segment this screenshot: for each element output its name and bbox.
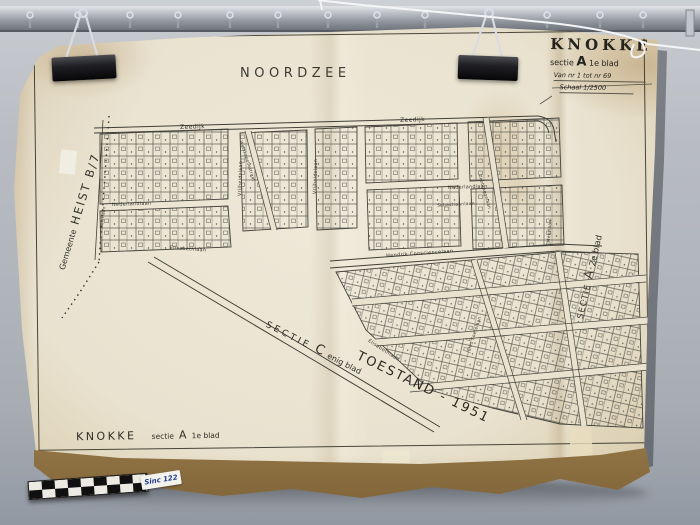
street-label: Nederlandlaan <box>112 201 151 208</box>
street-label: Heistlaan <box>99 206 107 229</box>
street-label: Elisabethlaan <box>170 245 207 253</box>
street-label: Meerlaan <box>546 219 553 242</box>
street-label: Zeedijk <box>400 116 425 124</box>
street-label: Elisabethlaan <box>367 338 401 363</box>
street-label: Zeedijk <box>180 123 205 131</box>
photo-of-cadastral-map: NOORDZEE KNOKKE sectie A 1e blad Van nr … <box>0 0 700 525</box>
street-label: Jules Soetelaan <box>466 316 483 354</box>
street-label: Hendrik Consciencelaan <box>386 248 454 258</box>
scale-bar-tag-label: Sinc 122 <box>144 473 178 486</box>
binder-clip-left <box>51 54 116 81</box>
hanging-cable <box>318 0 700 57</box>
binder-clip-right <box>458 55 519 81</box>
street-label: Zeebruggelaan <box>477 174 492 210</box>
rail-hooks <box>27 12 646 28</box>
rail-end-bracket <box>686 10 694 36</box>
clip-wire-handles <box>66 9 502 58</box>
street-label: Vrijheidslaan <box>312 159 319 194</box>
street-label: Vrijheidslaan <box>237 161 244 196</box>
street-label: Sebastiaanlaan <box>437 201 475 208</box>
